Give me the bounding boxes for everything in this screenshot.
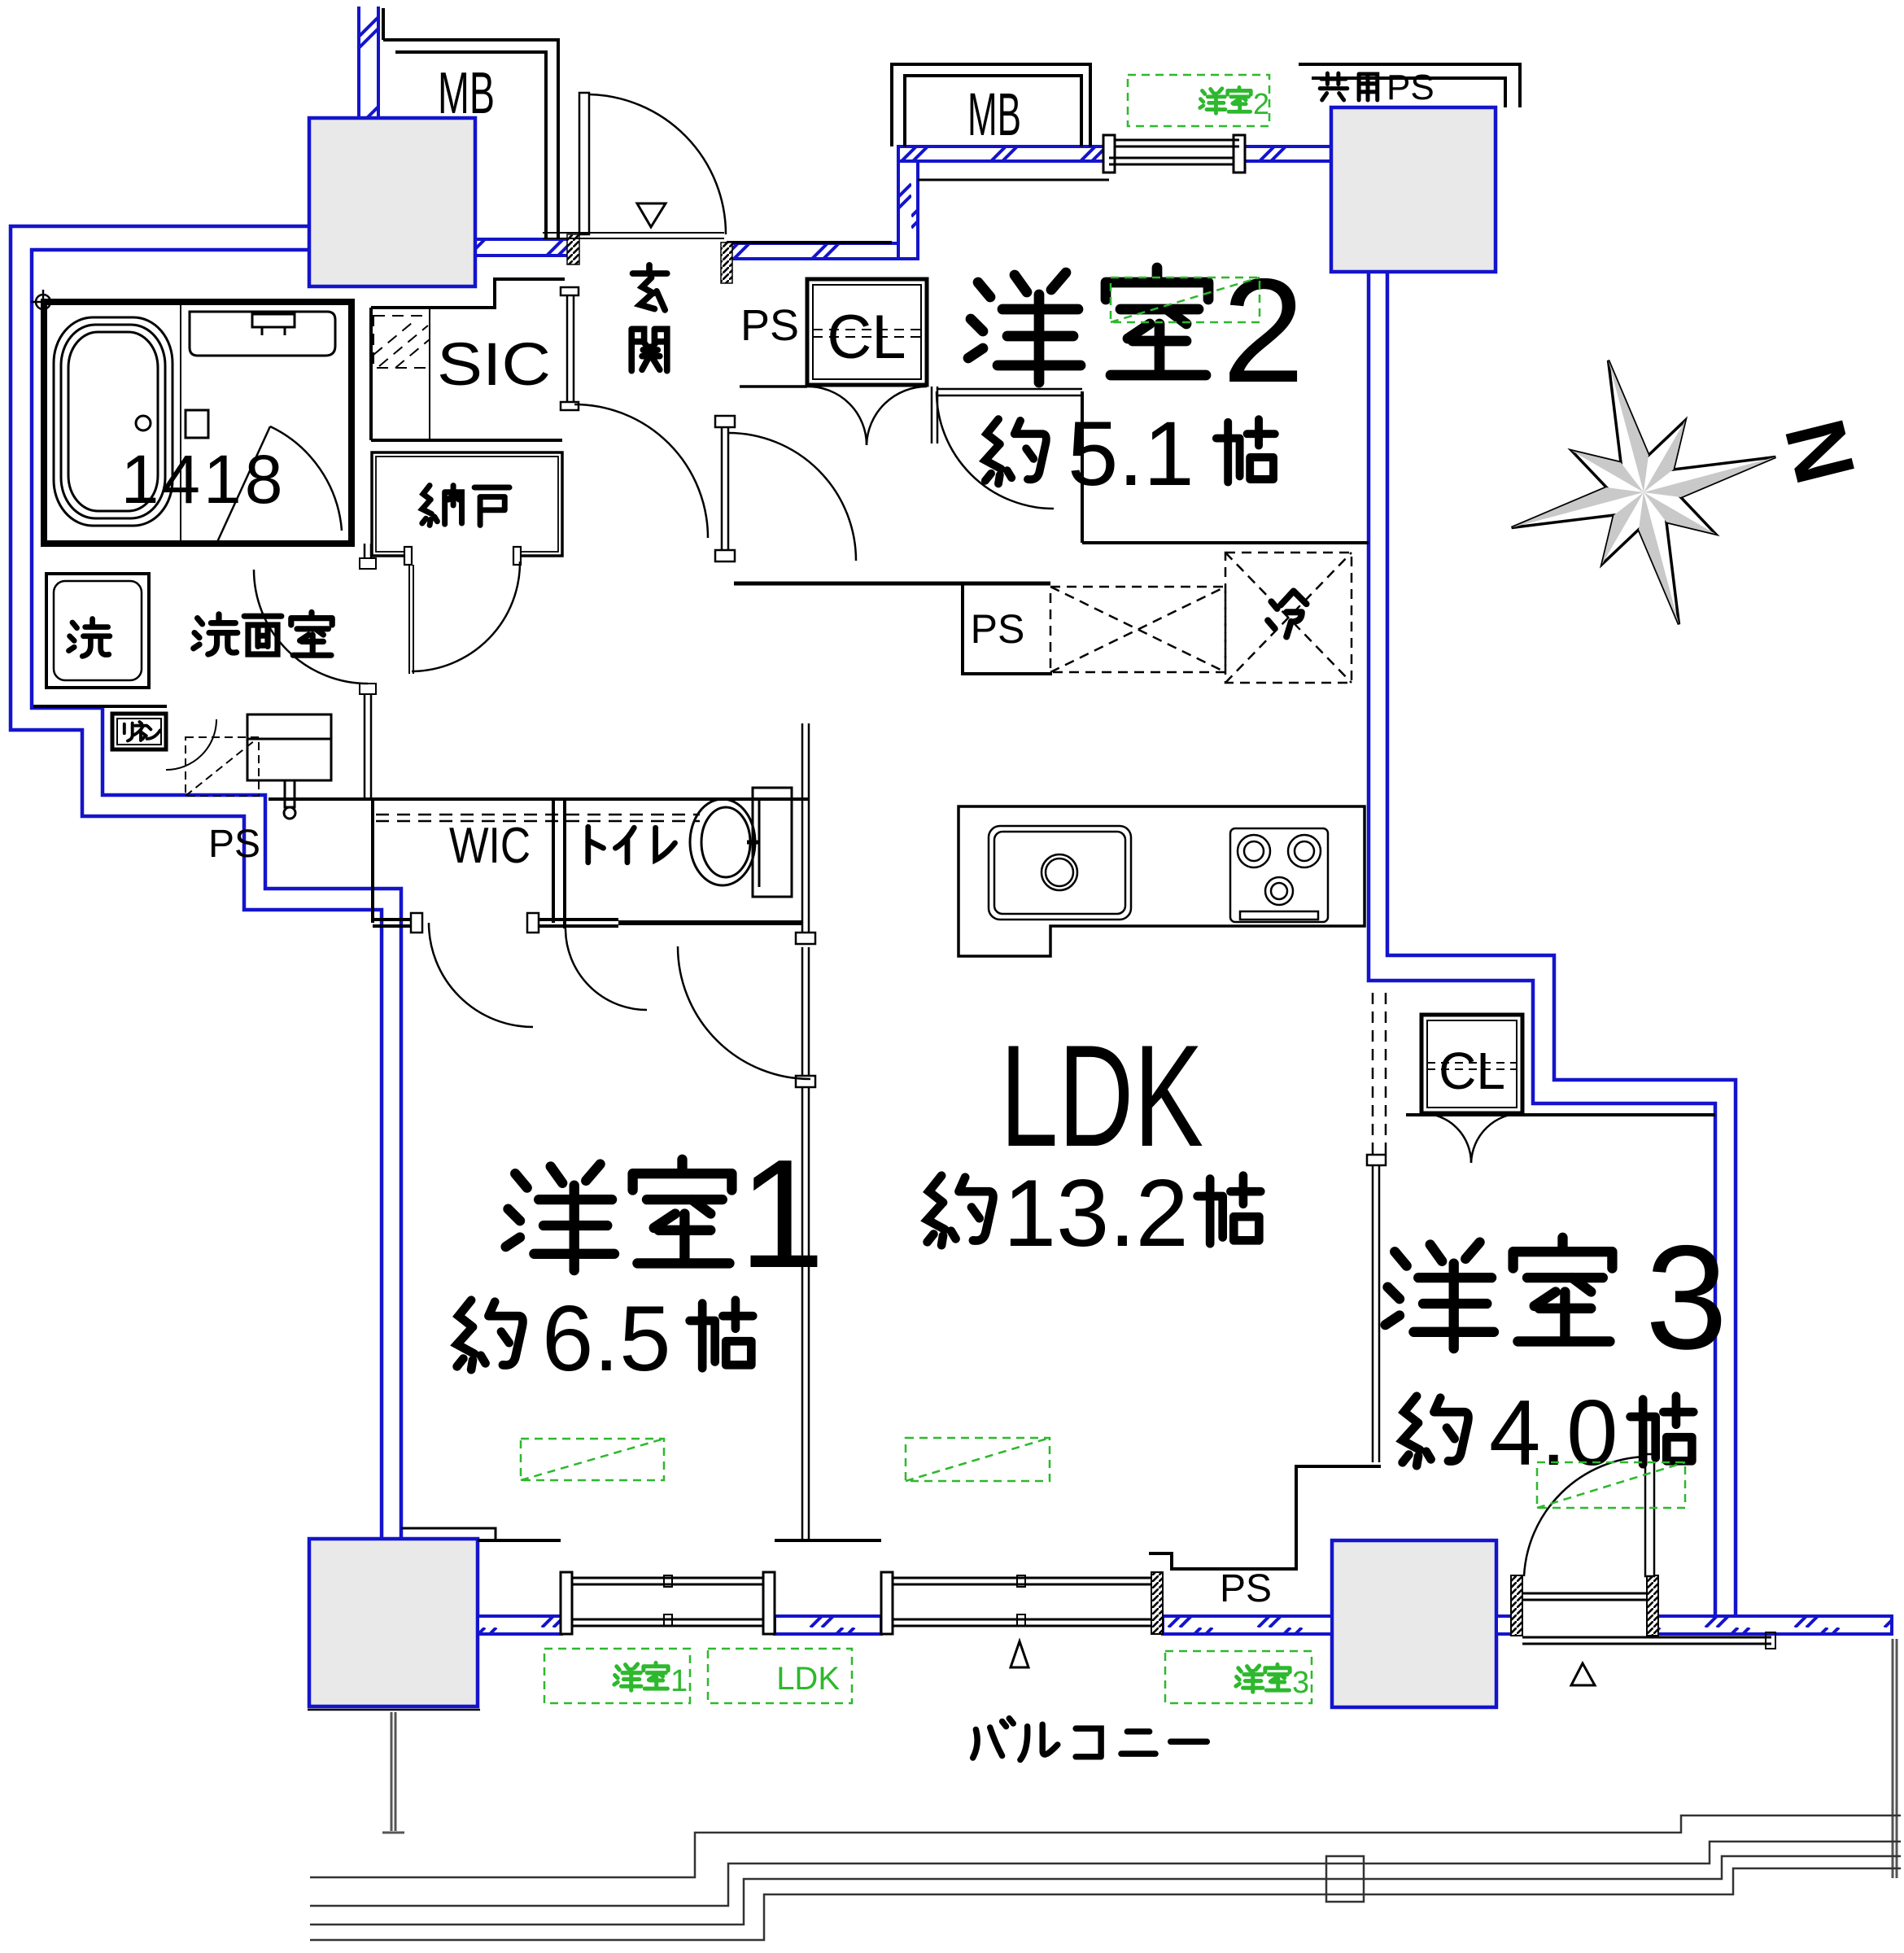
svg-text:MB: MB <box>438 61 495 126</box>
svg-text:3: 3 <box>1645 1214 1727 1380</box>
svg-text:1: 1 <box>670 1664 688 1698</box>
svg-text:PS: PS <box>1387 68 1435 107</box>
svg-text:LDK: LDK <box>776 1661 840 1697</box>
svg-text:4.0: 4.0 <box>1489 1382 1618 1485</box>
svg-text:LDK: LDK <box>1000 1015 1203 1177</box>
svg-text:PS: PS <box>740 301 799 350</box>
svg-text:PS: PS <box>1220 1567 1272 1610</box>
svg-text:PS: PS <box>971 606 1025 652</box>
svg-text:2: 2 <box>1253 87 1269 120</box>
svg-text:1418: 1418 <box>121 441 286 518</box>
svg-text:WIC: WIC <box>449 818 531 874</box>
svg-text:3: 3 <box>1292 1666 1309 1700</box>
svg-text:6.5: 6.5 <box>542 1287 670 1391</box>
svg-text:13.2: 13.2 <box>1003 1160 1189 1266</box>
svg-text:MB: MB <box>967 81 1021 148</box>
svg-text:CL: CL <box>1439 1042 1505 1100</box>
svg-text:1: 1 <box>739 1128 825 1300</box>
svg-text:2: 2 <box>1222 247 1304 413</box>
svg-text:PS: PS <box>208 823 260 866</box>
svg-text:SIC: SIC <box>437 330 551 398</box>
svg-text:CL: CL <box>827 303 906 372</box>
svg-text:5.1: 5.1 <box>1068 403 1194 505</box>
